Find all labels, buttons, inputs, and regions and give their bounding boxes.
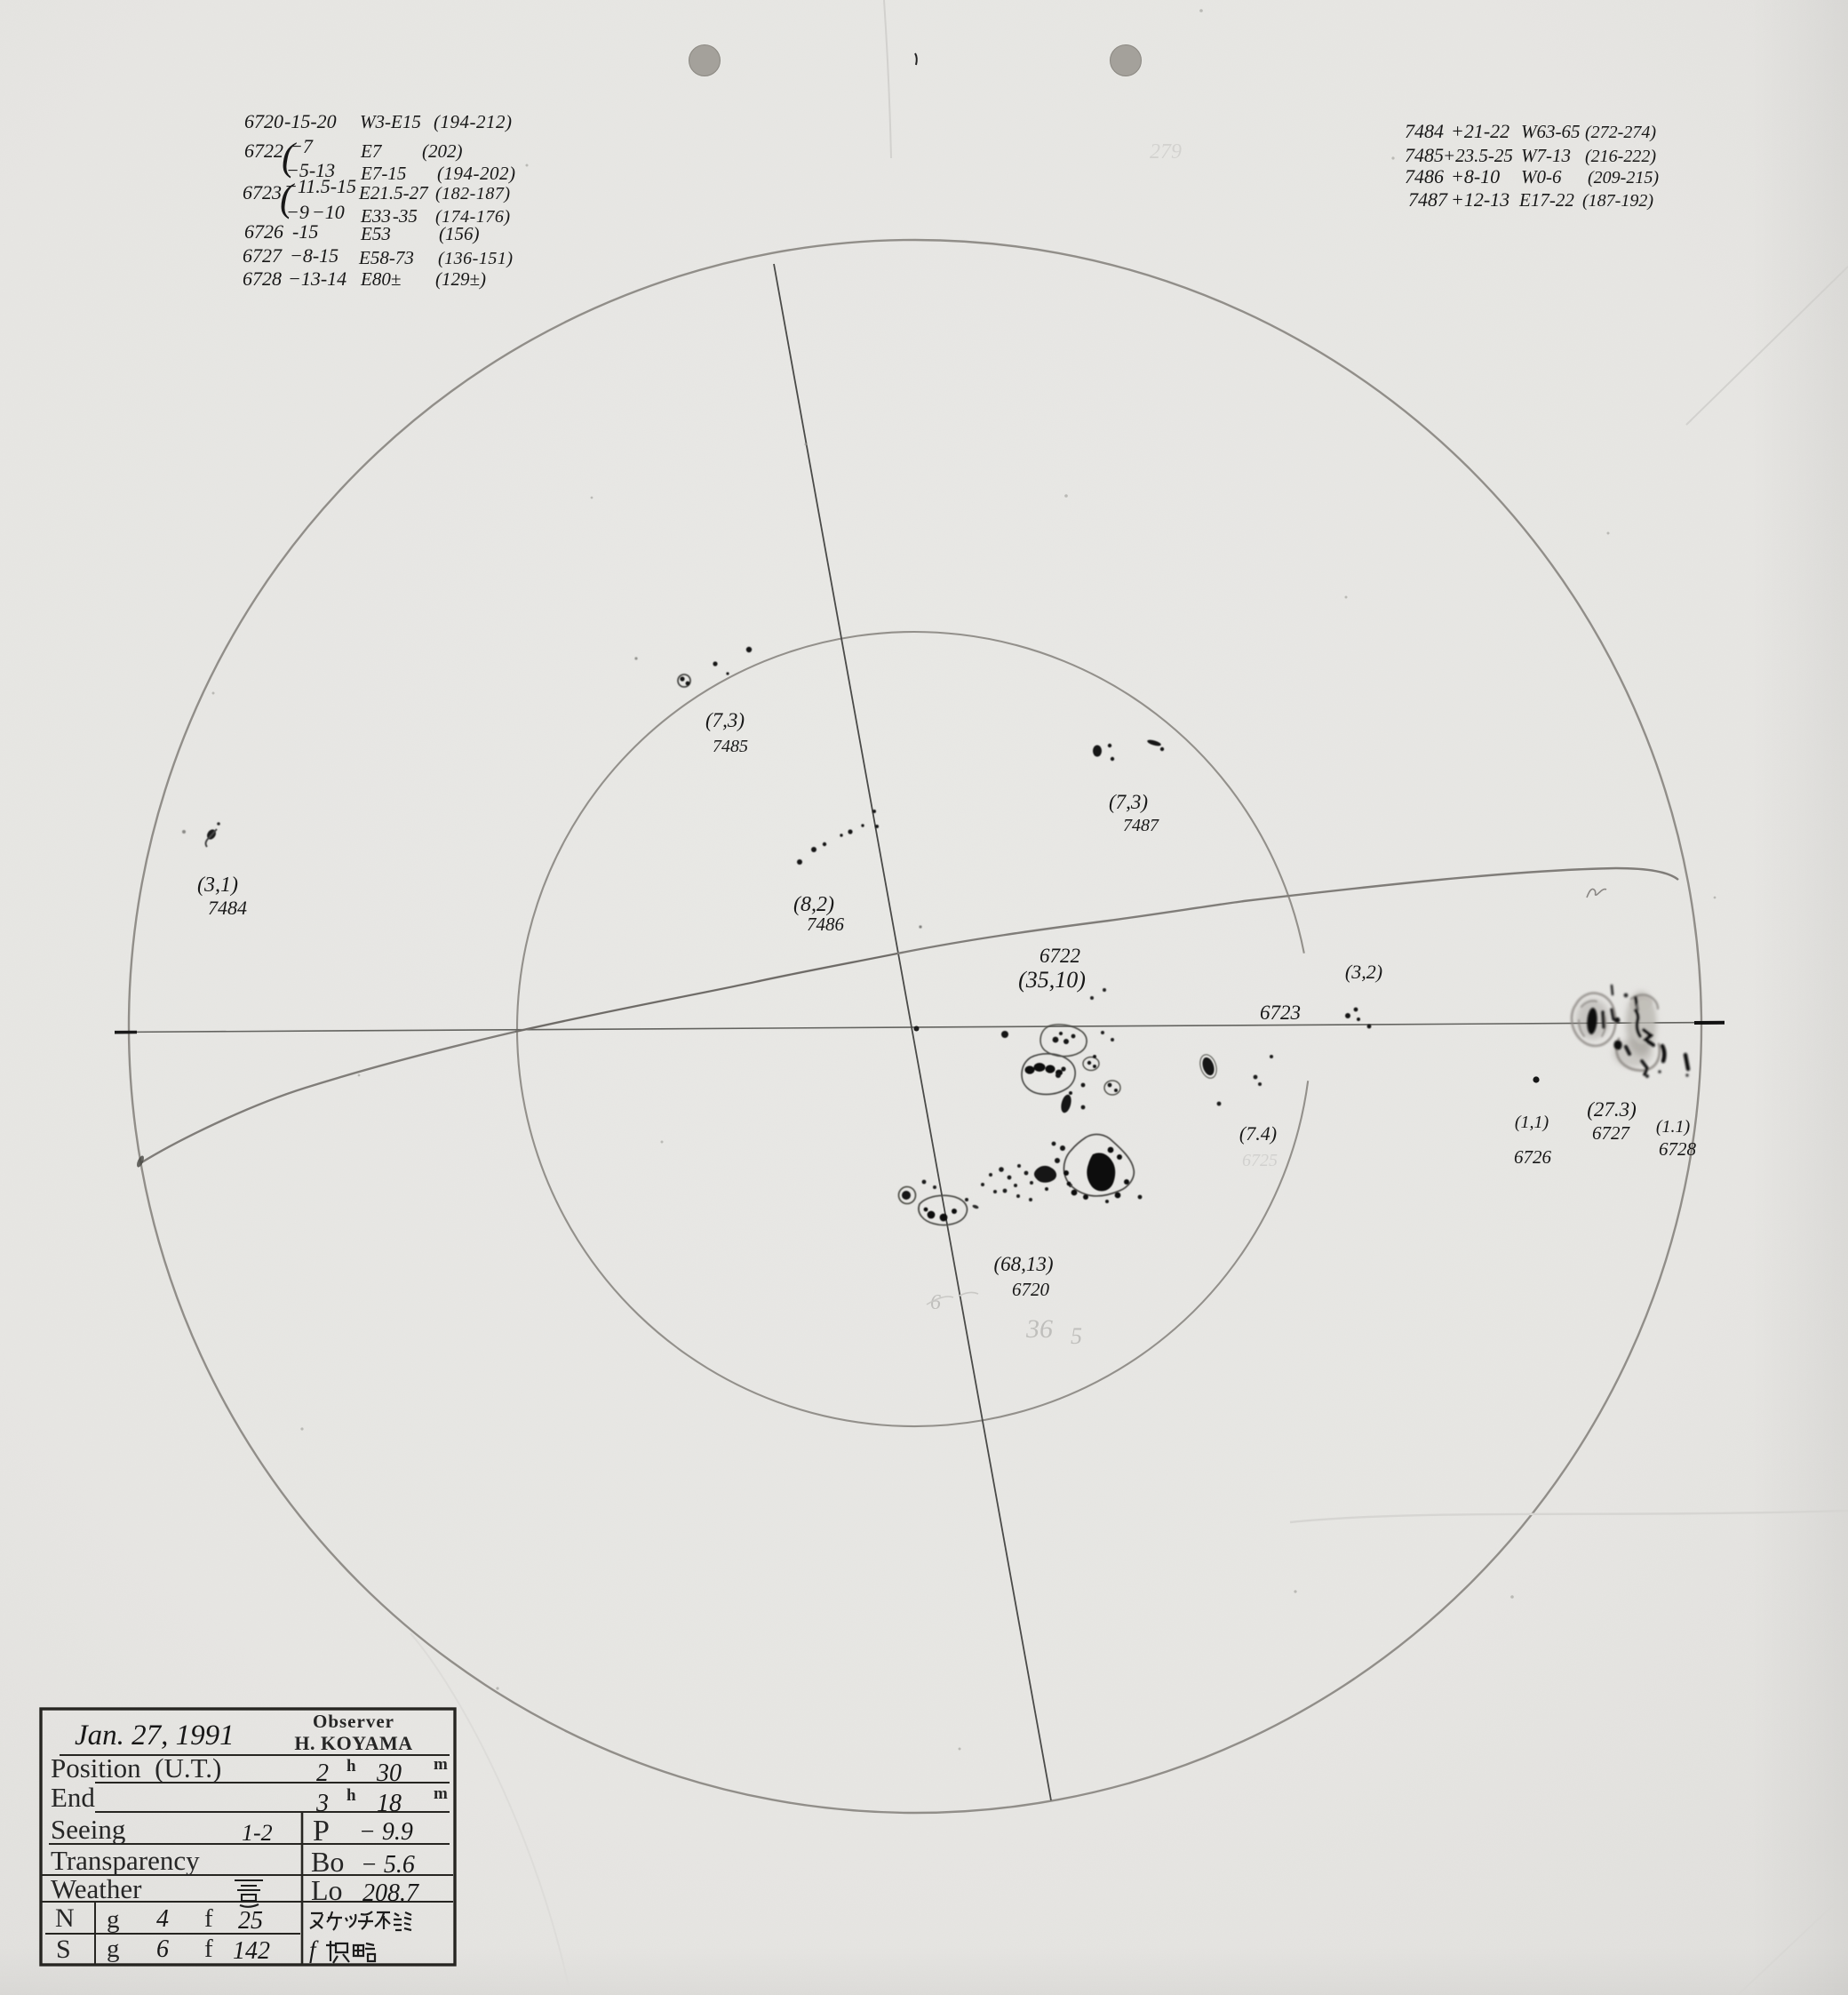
svg-text:6727: 6727 [1592, 1122, 1631, 1144]
svg-text:Jan. 27, 1991: Jan. 27, 1991 [75, 1720, 235, 1752]
svg-text:E7: E7 [360, 140, 383, 162]
svg-text:g: g [107, 1905, 120, 1934]
svg-text:7485: 7485 [713, 737, 748, 756]
svg-text:(35,10): (35,10) [1018, 967, 1086, 993]
svg-text:(68,13): (68,13) [993, 1253, 1053, 1275]
svg-text:7487: 7487 [1408, 188, 1448, 211]
svg-text:End: End [51, 1782, 95, 1813]
svg-text:W7-13: W7-13 [1521, 145, 1571, 166]
svg-text:3: 3 [315, 1790, 329, 1817]
svg-text:(7,3): (7,3) [705, 709, 745, 731]
svg-text:6725: 6725 [1242, 1151, 1278, 1170]
svg-text:E17-22: E17-22 [1518, 189, 1574, 211]
svg-text:(194-202): (194-202) [437, 163, 515, 184]
svg-text:P: P [313, 1815, 330, 1847]
svg-text:Lo: Lo [311, 1874, 343, 1906]
svg-text:6723: 6723 [243, 181, 282, 203]
svg-text:6728: 6728 [1659, 1138, 1697, 1160]
svg-text:(136-151): (136-151) [438, 249, 513, 268]
svg-text:18: 18 [377, 1790, 402, 1817]
svg-text:5: 5 [1071, 1323, 1082, 1349]
svg-text:6726-15: 6726-15 [244, 220, 318, 243]
svg-text:2: 2 [316, 1760, 329, 1787]
svg-text:Observer: Observer [313, 1711, 394, 1732]
svg-text:208.7: 208.7 [362, 1879, 419, 1907]
svg-text:6720-15-20: 6720-15-20 [244, 110, 337, 132]
svg-text:W63-65: W63-65 [1521, 121, 1581, 142]
svg-text:(7.4): (7.4) [1239, 1122, 1277, 1145]
svg-text:6: 6 [930, 1291, 941, 1314]
svg-text:6720: 6720 [1012, 1279, 1050, 1300]
svg-text:6722: 6722 [1039, 945, 1080, 967]
svg-text:6722: 6722 [244, 140, 283, 162]
svg-text:(194-212): (194-212) [434, 111, 512, 132]
svg-text:1-2: 1-2 [242, 1820, 273, 1846]
svg-text:36: 36 [1025, 1314, 1053, 1344]
svg-text:m: m [434, 1755, 448, 1774]
svg-text:−7: −7 [290, 135, 314, 157]
svg-text:+23.5-25: +23.5-25 [1443, 145, 1513, 166]
svg-text:E53: E53 [360, 223, 391, 244]
svg-text:+8-10: +8-10 [1451, 165, 1500, 188]
svg-text:(182-187): (182-187) [435, 184, 510, 203]
svg-text:E58-73: E58-73 [358, 247, 414, 268]
svg-text:7485: 7485 [1405, 144, 1444, 166]
svg-text:S: S [56, 1935, 71, 1964]
svg-text:(1.1): (1.1) [1656, 1117, 1691, 1137]
svg-text:Position (U.T.): Position (U.T.) [51, 1752, 221, 1784]
svg-text:E21.5-27: E21.5-27 [358, 182, 429, 203]
svg-text:7484: 7484 [1405, 120, 1444, 142]
svg-text:7487: 7487 [1123, 816, 1159, 835]
svg-text:W3-E15: W3-E15 [360, 111, 421, 132]
svg-text:N: N [55, 1903, 75, 1933]
svg-text:m: m [434, 1784, 448, 1803]
svg-text:H. KOYAMA: H. KOYAMA [294, 1732, 412, 1754]
svg-text:4: 4 [156, 1905, 169, 1933]
svg-text:+21-22: +21-22 [1451, 120, 1509, 142]
svg-text:30: 30 [376, 1760, 402, 1787]
svg-text:(7,3): (7,3) [1109, 791, 1148, 813]
svg-text:g: g [107, 1935, 120, 1963]
svg-text:7486: 7486 [807, 914, 845, 935]
svg-text:Seeing: Seeing [51, 1814, 125, 1845]
svg-text:(216-222): (216-222) [1585, 147, 1656, 166]
svg-text:(1,1): (1,1) [1515, 1113, 1549, 1132]
svg-text:−11.5-15: −11.5-15 [284, 175, 356, 197]
svg-text:6728−13-14: 6728−13-14 [243, 267, 346, 290]
svg-text:(202): (202) [422, 140, 463, 162]
svg-text:(27.3): (27.3) [1587, 1098, 1637, 1121]
svg-text:f: f [204, 1935, 213, 1963]
svg-text:7486: 7486 [1405, 165, 1444, 188]
svg-text:(272-274): (272-274) [1585, 123, 1656, 142]
svg-text:142: 142 [233, 1937, 270, 1965]
svg-text:− 5.6: − 5.6 [361, 1851, 415, 1879]
svg-text:6727−8-15: 6727−8-15 [243, 244, 339, 267]
svg-text:h: h [346, 1757, 356, 1776]
svg-text:(129±): (129±) [435, 268, 486, 290]
svg-text:6726: 6726 [1514, 1146, 1552, 1168]
svg-text:(209-215): (209-215) [1588, 168, 1659, 188]
svg-text:(3,2): (3,2) [1345, 961, 1382, 983]
svg-text:Weather: Weather [51, 1873, 142, 1904]
svg-text:Bo: Bo [311, 1846, 344, 1878]
svg-text:279: 279 [1150, 140, 1182, 164]
svg-text:6723: 6723 [1260, 1001, 1301, 1024]
svg-text:(156): (156) [439, 223, 480, 244]
svg-text:− 9.9: − 9.9 [359, 1818, 413, 1846]
svg-text:+12-13: +12-13 [1451, 188, 1509, 211]
svg-text:E80±: E80± [360, 268, 401, 290]
svg-text:(3,1): (3,1) [197, 874, 238, 897]
svg-text:6: 6 [156, 1935, 169, 1963]
svg-text:W0-6: W0-6 [1521, 166, 1562, 188]
svg-text:7484: 7484 [208, 897, 247, 919]
svg-text:25: 25 [238, 1907, 263, 1935]
svg-text:h: h [346, 1786, 356, 1805]
svg-text:(187-192): (187-192) [1582, 191, 1653, 211]
svg-text:Transparency: Transparency [51, 1845, 200, 1876]
svg-text:E7-15: E7-15 [360, 163, 406, 184]
svg-text:f: f [204, 1904, 213, 1933]
